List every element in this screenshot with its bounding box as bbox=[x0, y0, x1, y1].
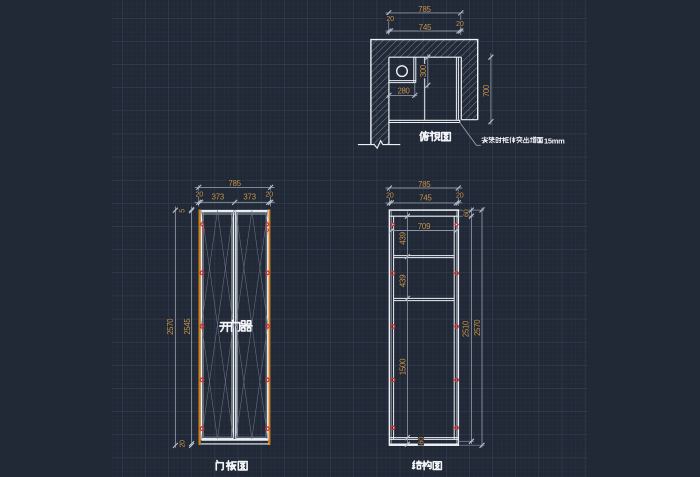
svg-text:60: 60 bbox=[417, 437, 426, 445]
svg-text:20: 20 bbox=[265, 190, 273, 199]
svg-text:439: 439 bbox=[399, 231, 408, 244]
svg-text:373: 373 bbox=[211, 193, 224, 202]
svg-text:1500: 1500 bbox=[399, 358, 408, 375]
svg-text:439: 439 bbox=[399, 274, 408, 287]
svg-text:745: 745 bbox=[419, 194, 432, 203]
svg-text:20: 20 bbox=[386, 191, 394, 200]
svg-text:373: 373 bbox=[243, 193, 256, 202]
svg-text:20: 20 bbox=[180, 440, 187, 448]
svg-text:5: 5 bbox=[180, 209, 187, 213]
svg-text:2545: 2545 bbox=[183, 318, 192, 335]
svg-text:20: 20 bbox=[386, 14, 394, 23]
svg-text:15mm: 15mm bbox=[544, 136, 565, 145]
svg-text:280: 280 bbox=[397, 86, 410, 95]
svg-text:785: 785 bbox=[418, 5, 431, 14]
svg-text:300: 300 bbox=[419, 64, 428, 77]
svg-text:60: 60 bbox=[461, 209, 470, 217]
svg-text:20: 20 bbox=[196, 190, 204, 199]
svg-text:2570: 2570 bbox=[473, 319, 482, 336]
svg-text:700: 700 bbox=[482, 84, 491, 97]
svg-text:20: 20 bbox=[456, 191, 464, 200]
svg-text:20: 20 bbox=[456, 19, 464, 28]
svg-text:709: 709 bbox=[418, 222, 431, 231]
svg-text:785: 785 bbox=[418, 180, 431, 189]
svg-text:2510: 2510 bbox=[462, 320, 471, 337]
svg-text:2570: 2570 bbox=[166, 318, 175, 335]
svg-text:785: 785 bbox=[228, 179, 241, 188]
svg-text:745: 745 bbox=[419, 23, 432, 32]
